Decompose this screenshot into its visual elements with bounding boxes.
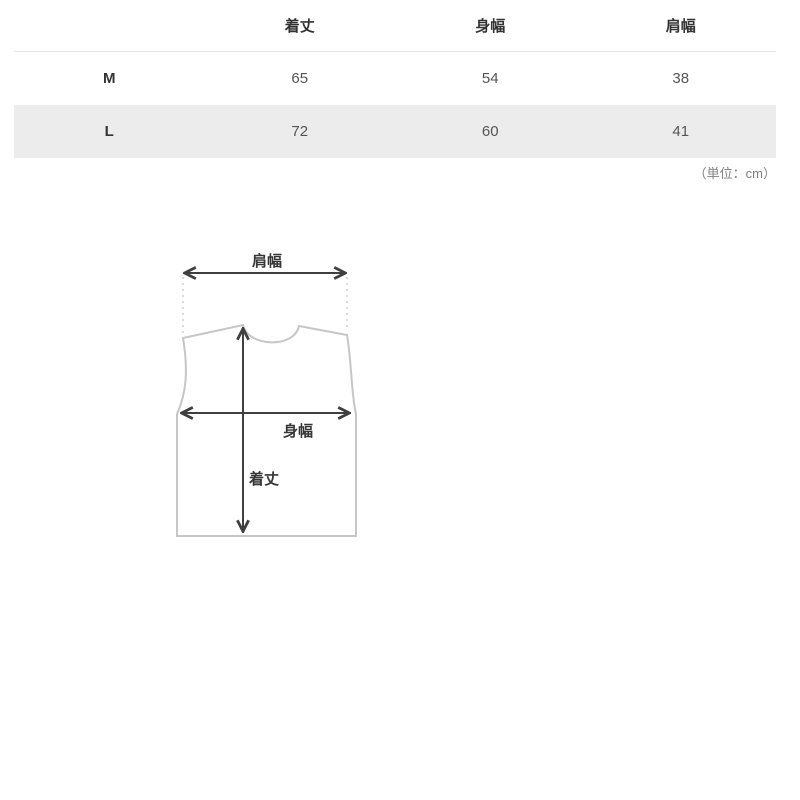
- length-label: 着丈: [248, 470, 279, 488]
- value-body-width: 60: [395, 123, 586, 140]
- size-label: L: [14, 123, 205, 140]
- table-row-m: M 65 54 38: [14, 52, 776, 105]
- value-length: 72: [205, 123, 396, 140]
- table-header-row: 着丈 身幅 肩幅: [14, 0, 776, 52]
- value-shoulder-width: 38: [586, 70, 777, 87]
- shoulder-width-label: 肩幅: [252, 252, 282, 270]
- value-shoulder-width: 41: [586, 123, 777, 140]
- value-length: 65: [205, 70, 396, 87]
- value-body-width: 54: [395, 70, 586, 87]
- header-cell-shoulder-width: 肩幅: [586, 15, 777, 36]
- header-cell-length: 着丈: [205, 15, 396, 36]
- body-width-label: 身幅: [283, 422, 313, 440]
- header-cell-body-width: 身幅: [395, 15, 586, 36]
- garment-measurement-diagram: 肩幅 身幅 着丈: [140, 230, 380, 560]
- size-table: 着丈 身幅 肩幅 M 65 54 38 L 72 60 41: [14, 0, 776, 158]
- garment-outline-shape: [177, 325, 356, 536]
- size-label: M: [14, 70, 205, 87]
- table-row-l: L 72 60 41: [14, 105, 776, 158]
- unit-note: （単位：cm）: [694, 163, 776, 182]
- size-chart-page: 着丈 身幅 肩幅 M 65 54 38 L 72 60 41 （単位：cm）: [0, 0, 800, 800]
